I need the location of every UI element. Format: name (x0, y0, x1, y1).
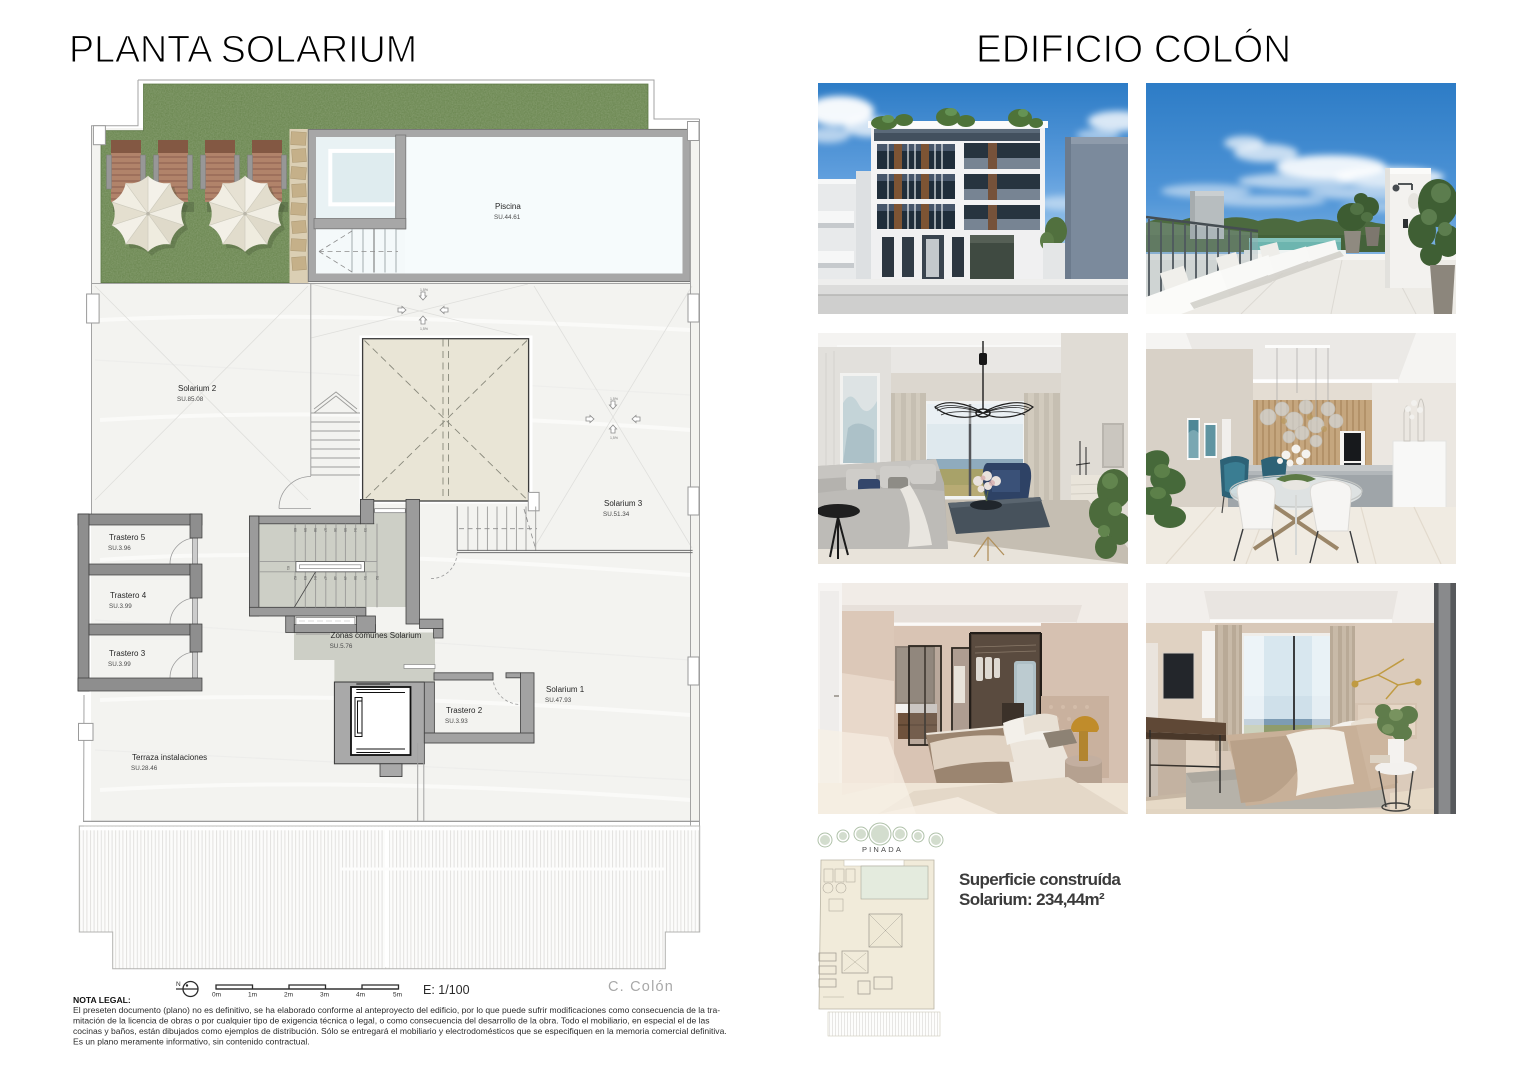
svg-text:62: 62 (293, 576, 297, 580)
svg-text:2m: 2m (284, 992, 293, 999)
svg-text:63: 63 (303, 576, 307, 580)
svg-text:Solarium 2: Solarium 2 (178, 384, 217, 393)
svg-text:59: 59 (303, 528, 307, 532)
svg-text:1,5%: 1,5% (610, 397, 618, 401)
svg-text:SU.47.93: SU.47.93 (545, 697, 572, 704)
svg-text:SU.5.76: SU.5.76 (330, 643, 353, 650)
svg-text:SU.44.61: SU.44.61 (494, 214, 521, 221)
svg-text:1,5%: 1,5% (610, 436, 618, 440)
svg-text:mitación de la licencia de obr: mitación de la licencia de obras o por c… (73, 1016, 710, 1026)
svg-text:Zonas comunes Solarium: Zonas comunes Solarium (331, 631, 422, 640)
svg-text:50: 50 (353, 576, 357, 580)
svg-text:N: N (176, 981, 181, 988)
svg-text:E: 1/100: E: 1/100 (423, 983, 470, 997)
svg-text:Piscina: Piscina (495, 202, 521, 211)
svg-text:57: 57 (323, 528, 327, 532)
svg-text:48: 48 (333, 576, 337, 580)
svg-text:55: 55 (343, 528, 347, 532)
svg-text:cocinas y baños, están dibujad: cocinas y baños, están dibujados como ej… (73, 1026, 727, 1036)
svg-text:4m: 4m (356, 992, 365, 999)
svg-text:1,5%: 1,5% (420, 288, 428, 292)
svg-text:56: 56 (333, 528, 337, 532)
svg-text:0m: 0m (212, 992, 221, 999)
svg-text:SU.3.99: SU.3.99 (109, 603, 132, 610)
svg-text:47: 47 (323, 576, 327, 580)
svg-text:5m: 5m (393, 992, 402, 999)
svg-text:Trastero 2: Trastero 2 (446, 706, 483, 715)
svg-text:Trastero 5: Trastero 5 (109, 533, 146, 542)
svg-text:SU.3.99: SU.3.99 (108, 661, 131, 668)
svg-text:Solarium 1: Solarium 1 (546, 685, 585, 694)
svg-text:60: 60 (293, 528, 297, 532)
svg-text:SU.51.34: SU.51.34 (603, 511, 630, 518)
svg-text:3m: 3m (320, 992, 329, 999)
svg-text:Trastero 4: Trastero 4 (110, 591, 147, 600)
svg-text:SU.3.96: SU.3.96 (108, 545, 131, 552)
svg-text:NOTA LEGAL:: NOTA LEGAL: (73, 995, 131, 1005)
svg-text:Es un plano meramente informat: Es un plano meramente informativo, sin c… (73, 1037, 310, 1047)
svg-text:49: 49 (343, 576, 347, 580)
svg-text:SU.3.93: SU.3.93 (445, 718, 468, 725)
svg-text:58: 58 (313, 528, 317, 532)
svg-text:1m: 1m (248, 992, 257, 999)
svg-text:54: 54 (353, 528, 357, 532)
svg-text:Trastero 3: Trastero 3 (109, 649, 146, 658)
svg-text:El preseten documento (plano): El preseten documento (plano) no es defi… (73, 1005, 720, 1015)
svg-text:53: 53 (363, 528, 367, 532)
svg-text:SU.28.46: SU.28.46 (131, 765, 158, 772)
svg-text:61: 61 (286, 566, 290, 570)
svg-text:52: 52 (375, 576, 379, 580)
svg-text:Terraza instalaciones: Terraza instalaciones (132, 753, 207, 762)
svg-text:C. Colón: C. Colón (608, 979, 674, 995)
svg-text:SU.85.08: SU.85.08 (177, 396, 204, 403)
svg-text:51: 51 (363, 576, 367, 580)
svg-text:Solarium 3: Solarium 3 (604, 499, 643, 508)
svg-text:1,5%: 1,5% (420, 327, 428, 331)
svg-text:64: 64 (313, 576, 317, 580)
